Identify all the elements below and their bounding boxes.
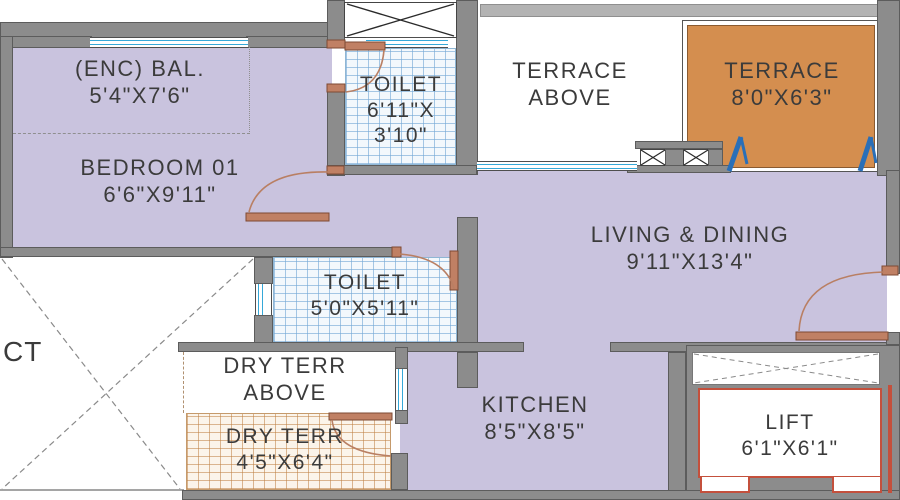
duct-bottom-line xyxy=(0,489,184,491)
room-name: BEDROOM 01 xyxy=(20,155,300,182)
shaft-end-block xyxy=(708,149,723,166)
duct-label: CT xyxy=(3,336,42,368)
room-label-lift: LIFT 6'1"X6'1" xyxy=(715,410,865,461)
toilet1-window xyxy=(366,37,448,48)
shaft-box xyxy=(344,2,457,38)
passage-floor xyxy=(327,175,457,247)
room-name: (ENC) BAL. xyxy=(30,56,250,83)
room-name: TERRACE xyxy=(692,58,872,85)
room-name: DRY TERR xyxy=(195,424,375,450)
room-name: KITCHEN xyxy=(420,392,650,419)
wall xyxy=(877,0,900,176)
lift-side-line xyxy=(888,385,892,493)
dry-terr-above-window xyxy=(395,369,408,410)
lift-duct-box xyxy=(692,352,880,385)
room-label-dry-terr: DRY TERR 4'5"X6'4" xyxy=(195,424,375,475)
balcony-dashed-line xyxy=(13,133,250,135)
shaft-top-bar xyxy=(635,141,723,149)
room-dims: 5'4"X7'6" xyxy=(30,83,250,110)
room-name: TOILET xyxy=(272,270,458,296)
wall xyxy=(457,217,478,343)
wall xyxy=(886,170,900,274)
lift-door-jamb xyxy=(700,477,750,493)
wall xyxy=(886,332,900,345)
kitchen-entry-opening-floor xyxy=(524,342,610,352)
room-dims: 8'5"X8'5" xyxy=(420,419,650,446)
wall xyxy=(480,4,878,17)
room-name: TOILET xyxy=(344,72,458,98)
wall xyxy=(246,36,332,48)
room-dims: 6'1"X6'1" xyxy=(715,436,865,462)
room-dims: 8'0"X6'3" xyxy=(692,85,872,112)
room-label-kitchen: KITCHEN 8'5"X8'5" xyxy=(420,392,650,446)
wall xyxy=(395,347,408,369)
wall xyxy=(456,0,478,175)
wall xyxy=(395,410,408,424)
room-dims: 5'0"X5'11" xyxy=(272,296,458,322)
room-name: DRY TERR xyxy=(190,353,380,380)
room-name: LIVING & DINING xyxy=(545,222,835,249)
wall xyxy=(327,0,345,48)
room-label-enc-bal: (ENC) BAL. 5'4"X7'6" xyxy=(30,56,250,110)
wall xyxy=(0,247,400,257)
shaft-bottom-bar xyxy=(627,165,731,173)
wall xyxy=(668,352,686,500)
wall xyxy=(391,453,408,490)
room-label-terrace-above: TERRACE ABOVE xyxy=(495,58,645,112)
wall xyxy=(0,36,13,258)
wall xyxy=(0,36,92,48)
wall xyxy=(457,352,478,388)
wall xyxy=(178,342,524,352)
room-name: LIFT xyxy=(715,410,865,436)
room-dims: 4'5"X6'4" xyxy=(195,450,375,476)
room-label-bedroom01: BEDROOM 01 6'6"X9'11" xyxy=(20,155,300,209)
living-window xyxy=(477,161,637,171)
toilet2-window xyxy=(255,284,272,315)
dry-terr-above-dashed-edge xyxy=(183,352,185,413)
wall xyxy=(182,490,900,500)
room-name: ABOVE xyxy=(190,380,380,407)
bedroom-window xyxy=(90,37,248,48)
shaft-x-box xyxy=(683,149,709,166)
room-name: ABOVE xyxy=(495,85,645,112)
room-label-terrace: TERRACE 8'0"X6'3" xyxy=(692,58,872,112)
room-dims: 3'10" xyxy=(344,123,458,149)
room-label-dry-terr-above: DRY TERR ABOVE xyxy=(190,353,380,407)
shaft-center-block xyxy=(665,149,684,166)
floor-plan: (ENC) BAL. 5'4"X7'6" BEDROOM 01 6'6"X9'1… xyxy=(0,0,900,500)
wall xyxy=(327,165,477,175)
toilet2-door-opening-floor xyxy=(398,247,457,257)
room-dims: 6'6"X9'11" xyxy=(20,182,300,209)
room-dims: 6'11"X xyxy=(344,98,458,124)
wall xyxy=(254,315,273,344)
room-label-toilet2: TOILET 5'0"X5'11" xyxy=(272,270,458,321)
room-label-toilet1: TOILET 6'11"X 3'10" xyxy=(344,72,458,149)
room-label-living-dining: LIVING & DINING 9'11"X13'4" xyxy=(545,222,835,276)
duct-name: CT xyxy=(3,336,42,367)
wall xyxy=(327,86,345,176)
room-name: TERRACE xyxy=(495,58,645,85)
lift-door-jamb xyxy=(832,477,882,493)
shaft-x-box xyxy=(640,149,666,166)
wall xyxy=(254,257,273,284)
room-dims: 9'11"X13'4" xyxy=(545,249,835,276)
